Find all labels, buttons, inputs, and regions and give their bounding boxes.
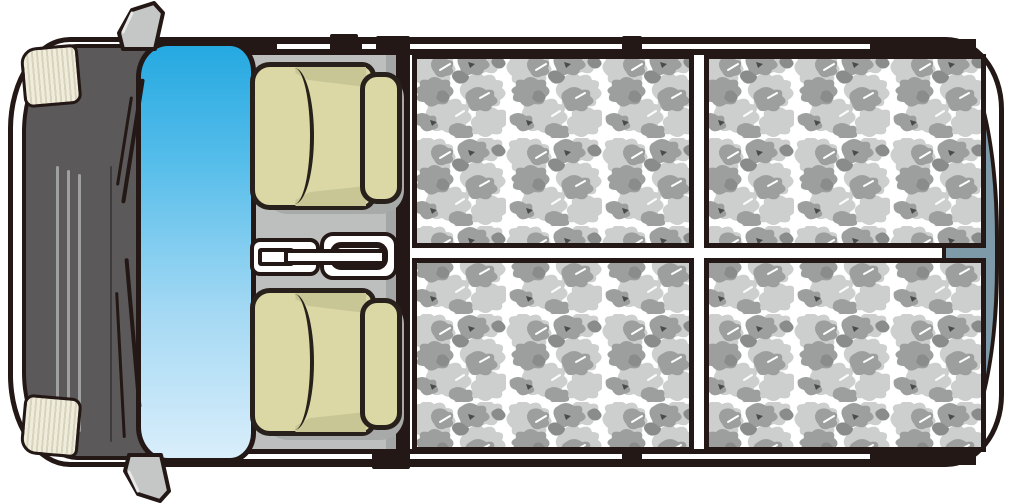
hood-crease-line [110, 166, 112, 442]
side-mirror-lower [116, 452, 176, 504]
seat-headrest [360, 298, 402, 430]
seat-upper [250, 60, 402, 214]
cargo-panel-grid [410, 50, 988, 456]
cargo-panel [707, 57, 984, 246]
headlight-upper [19, 44, 82, 109]
rail-trim-line [277, 44, 330, 49]
lever-bar [284, 249, 386, 265]
cargo-panel [707, 261, 984, 450]
rail-trim-line [642, 44, 870, 49]
grille-line [67, 170, 70, 434]
seat-lower [250, 286, 402, 440]
windshield [136, 41, 256, 463]
cargo-panel [415, 57, 692, 246]
rail-trim-line [398, 44, 622, 49]
headlight-lower [19, 394, 82, 459]
door-hinge-block [330, 34, 358, 48]
center-console [248, 230, 400, 282]
cargo-panel [415, 261, 692, 450]
seat-headrest [360, 72, 402, 204]
side-mirror-upper [110, 0, 170, 52]
grille-line [78, 174, 81, 432]
van-top-view-illustration [0, 0, 1024, 504]
